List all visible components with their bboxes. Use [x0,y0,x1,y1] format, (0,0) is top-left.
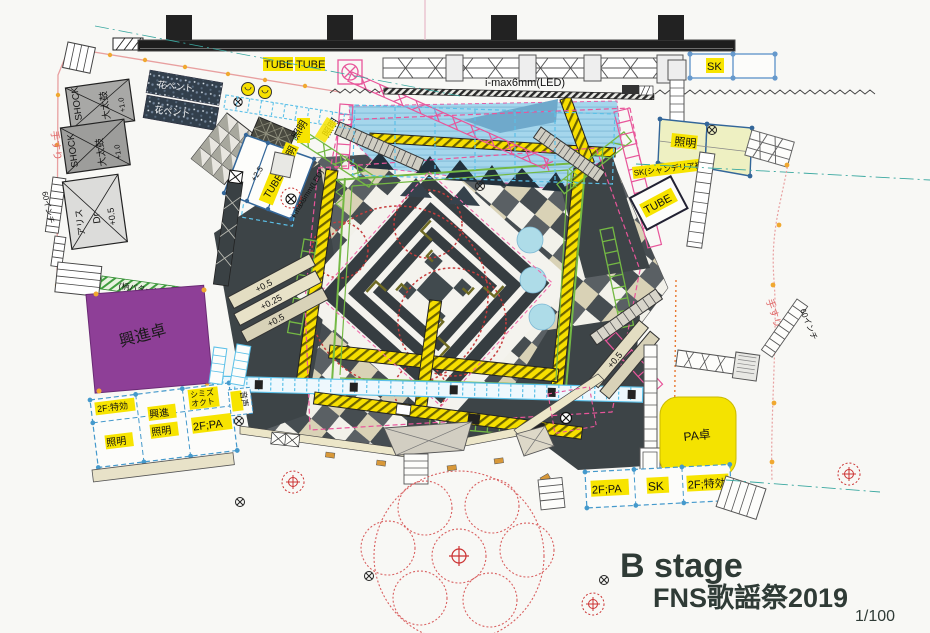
svg-text:TUBE: TUBE [264,59,293,71]
svg-text:FNS歌謡祭2019: FNS歌謡祭2019 [653,582,848,613]
svg-text:2F;PA: 2F;PA [592,483,623,497]
svg-text:B stage: B stage [620,547,743,585]
svg-text:照明: 照明 [674,135,697,150]
svg-text:興進: 興進 [149,406,170,420]
svg-text:PA卓: PA卓 [683,427,711,444]
svg-text:TUBE: TUBE [296,59,325,71]
svg-text:SK: SK [647,479,664,494]
svg-text:照明: 照明 [151,424,172,438]
svg-text:照明: 照明 [106,435,127,449]
svg-text:SK: SK [707,61,722,73]
svg-text:1/100: 1/100 [855,608,895,625]
svg-text:i-max6mm(LED): i-max6mm(LED) [485,77,565,89]
